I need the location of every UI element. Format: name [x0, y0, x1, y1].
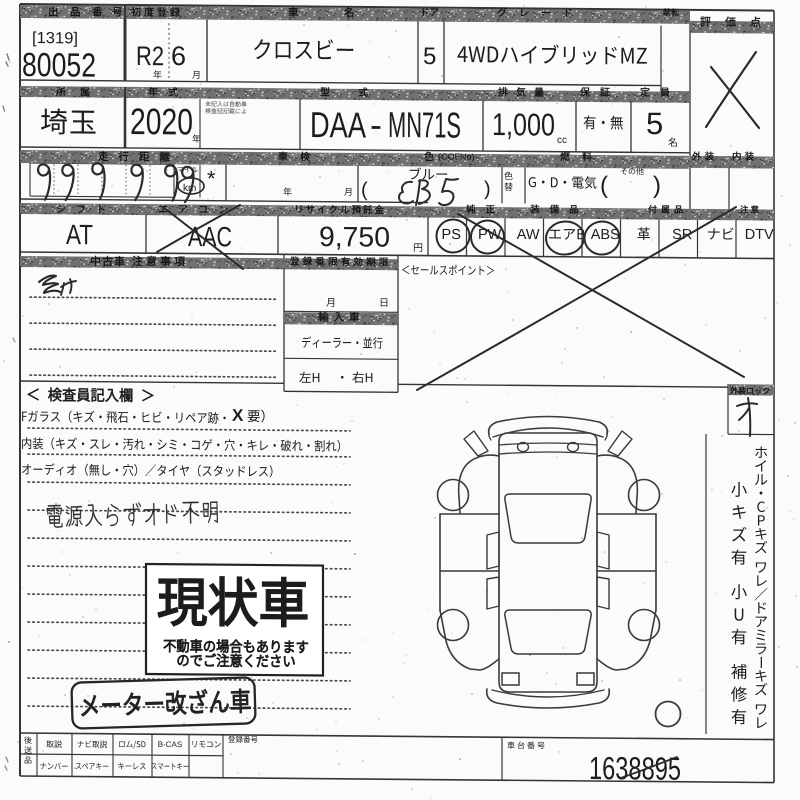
svg-text:DAA: DAA [310, 104, 366, 145]
svg-text:(COFNo): (COFNo) [438, 152, 474, 162]
svg-text:): ) [653, 172, 661, 199]
svg-text:5: 5 [646, 106, 663, 141]
svg-text:1638895: 1638895 [589, 750, 681, 787]
svg-text:PS: PS [442, 227, 461, 243]
svg-text:B-CAS: B-CAS [158, 740, 182, 749]
svg-text:ABS: ABS [591, 227, 620, 243]
svg-text:(: ( [600, 172, 608, 199]
svg-text:9,750: 9,750 [319, 221, 390, 253]
svg-text:-: - [370, 104, 382, 145]
svg-text:2020: 2020 [130, 101, 193, 143]
svg-text:AW: AW [517, 227, 540, 243]
svg-text:AT: AT [66, 219, 93, 250]
svg-text:AAC: AAC [188, 221, 232, 252]
svg-text:): ) [484, 178, 491, 200]
svg-text:X: X [232, 406, 244, 425]
svg-text:DTV: DTV [745, 227, 774, 243]
svg-text:[1319]: [1319] [32, 30, 78, 47]
svg-text:80052: 80052 [22, 47, 96, 85]
svg-text:*: * [207, 166, 216, 191]
svg-text:1,000: 1,000 [492, 106, 555, 143]
svg-text:cc: cc [557, 135, 567, 146]
svg-text:(: ( [361, 179, 368, 201]
svg-text:MN71S: MN71S [388, 104, 461, 146]
svg-text:R2: R2 [136, 41, 164, 71]
svg-text:PW: PW [478, 227, 502, 243]
svg-text:6: 6 [171, 41, 186, 71]
svg-text:5: 5 [423, 43, 436, 70]
